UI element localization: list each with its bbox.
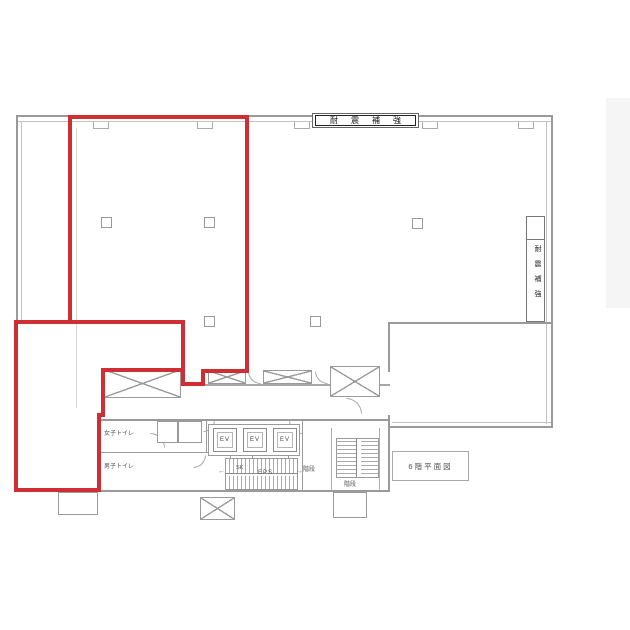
wall-stub: [422, 122, 438, 129]
seismic-top-label: 耐震補強: [317, 116, 414, 125]
shaft-xbox: [104, 369, 181, 398]
wall-stub: [197, 122, 213, 129]
red-boundary-bottom: [14, 488, 101, 492]
sub-stair-label: 階段: [344, 479, 356, 488]
floor-plan: EV EV EV ← → 階段 階段 女子トイレ 男子トイレ SK EPS 耐震…: [0, 0, 630, 630]
faint-inner-line: [76, 128, 77, 408]
main-stair-label: 階段: [303, 464, 315, 473]
core-right-wall: [388, 415, 390, 492]
womens-toilet-label: 女子トイレ: [104, 428, 134, 437]
wall-right-inner: [546, 121, 547, 424]
elevator-2-label: EV: [247, 432, 263, 448]
wall-left-inner: [21, 121, 22, 322]
floor-title-box: 6階平面図: [392, 451, 469, 481]
column-marker: [101, 217, 112, 228]
lower-stair-annex: [333, 492, 367, 518]
toilet-booth: [157, 421, 178, 443]
main-stair-arrow-left: ←: [218, 468, 225, 475]
elevator-2: EV: [243, 428, 267, 452]
column-marker: [412, 218, 423, 229]
red-boundary-right: [245, 115, 249, 373]
elevator-3: EV: [273, 428, 297, 452]
shaft-xbox: [263, 370, 312, 384]
door-arc: [248, 371, 261, 384]
side-gray-strip: [606, 98, 630, 308]
seismic-right-box: 耐震補強: [526, 216, 545, 322]
red-boundary-partition: [181, 322, 185, 386]
wall-stub: [294, 122, 310, 129]
red-boundary-seg: [203, 369, 249, 373]
core-top-wall: [97, 419, 390, 421]
sub-stair: [336, 438, 379, 478]
toilet-booth: [178, 421, 202, 443]
red-boundary-upper-left: [68, 115, 72, 324]
door-arc: [193, 455, 206, 468]
seismic-right-label: 耐震補強: [532, 245, 542, 305]
substair-wall-right: [379, 428, 380, 490]
red-boundary-shaft-left: [101, 368, 105, 417]
wall-stub: [93, 122, 109, 129]
substair-wall-left: [331, 428, 332, 490]
elevator-1: EV: [213, 428, 237, 452]
eps-label: EPS: [258, 470, 273, 476]
seismic-top-box-inner: 耐震補強: [315, 115, 416, 126]
sk-label: SK: [236, 465, 243, 471]
shaft-xbox: [200, 497, 235, 520]
right-room-left-wall: [388, 322, 390, 372]
lower-left-annex: [58, 492, 98, 515]
wall-stub: [518, 122, 534, 129]
right-room-top-wall: [388, 322, 551, 324]
red-boundary-shaft-top: [102, 368, 183, 372]
red-boundary-top: [68, 115, 249, 119]
door-arc: [315, 371, 328, 384]
column-marker: [204, 217, 215, 228]
floor-title: 6階平面図: [408, 461, 452, 472]
red-boundary-seg: [183, 382, 205, 386]
door-arc: [346, 398, 362, 414]
red-boundary-mid: [16, 320, 185, 324]
red-boundary-lower-left: [97, 413, 101, 492]
column-marker: [310, 316, 321, 327]
elevator-1-label: EV: [217, 432, 233, 448]
column-marker: [204, 316, 215, 327]
shaft-xbox: [330, 366, 380, 397]
wall-bottom-right-inner: [392, 422, 551, 423]
wall-bottom-right-outer: [390, 426, 553, 428]
wall-right-outer: [551, 115, 553, 428]
elevator-3-label: EV: [277, 432, 293, 448]
red-boundary-left: [14, 320, 18, 492]
main-stair-arrow-right: →: [296, 468, 303, 475]
mens-toilet-label: 男子トイレ: [104, 461, 134, 470]
